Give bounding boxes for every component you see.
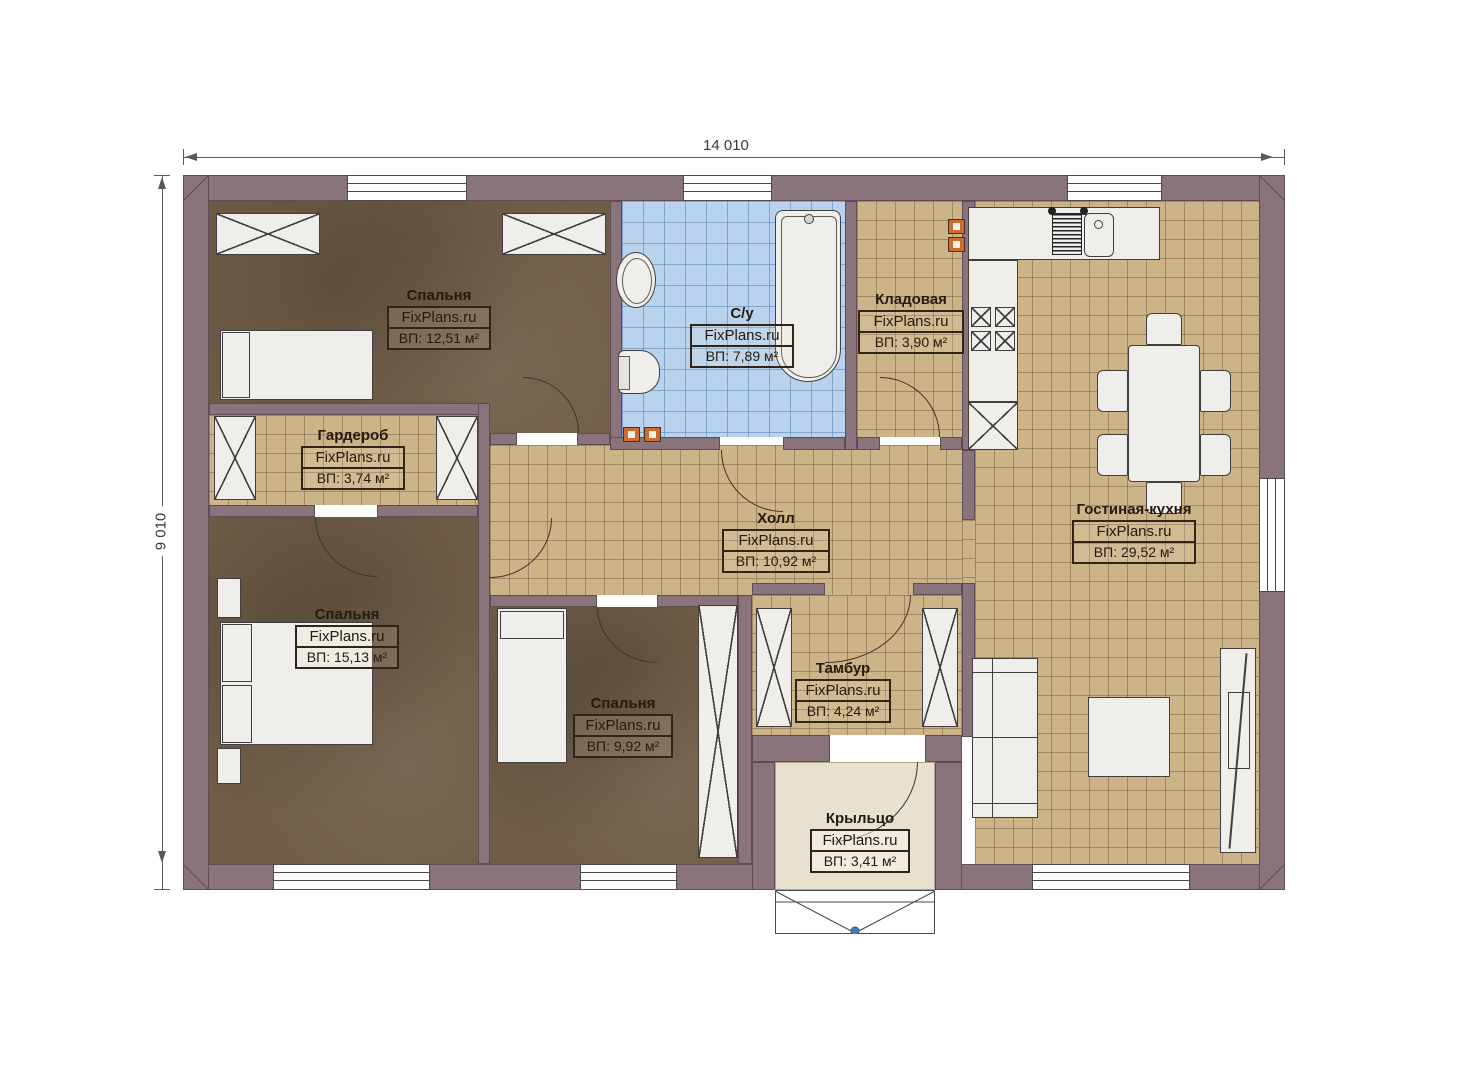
label-box: FixPlans.ru ВП: 12,51 м² <box>387 306 491 350</box>
room-label-pantry: Кладовая FixPlans.ru ВП: 3,90 м² <box>858 291 964 354</box>
dim-top-tick-right <box>1284 149 1285 165</box>
wall-entrance-a <box>752 735 830 762</box>
label-box: FixPlans.ru ВП: 4,24 м² <box>795 679 891 723</box>
watermark: FixPlans.ru <box>297 627 397 648</box>
room-area: ВП: 3,90 м² <box>860 333 962 352</box>
wall-wardrobe-bed2-a <box>209 505 315 517</box>
corner-mitre-tl <box>183 175 209 201</box>
dim-left-tick-top <box>154 175 170 176</box>
label-box: FixPlans.ru ВП: 3,41 м² <box>810 829 910 873</box>
watermark: FixPlans.ru <box>303 448 403 469</box>
stove-burner-3 <box>971 331 991 351</box>
watermark: FixPlans.ru <box>812 831 908 852</box>
corner-mitre-bl <box>183 864 209 890</box>
window-bathroom <box>683 175 772 201</box>
wall-hall-living-a <box>962 450 975 520</box>
dimension-height-label: 9 010 <box>152 507 169 557</box>
room-label-bedroom-1: Спальня FixPlans.ru ВП: 12,51 м² <box>387 287 491 350</box>
room-area: ВП: 12,51 м² <box>389 329 489 348</box>
label-box: FixPlans.ru ВП: 29,52 м² <box>1072 520 1196 564</box>
watermark: FixPlans.ru <box>860 312 962 333</box>
watermark: FixPlans.ru <box>692 326 792 347</box>
wall-entrance-b <box>925 735 962 762</box>
label-box: FixPlans.ru ВП: 9,92 м² <box>573 714 673 758</box>
wall-bed3-vestibule <box>738 595 752 864</box>
room-area: ВП: 10,92 м² <box>724 552 828 571</box>
dim-left-arrow-bottom <box>158 851 166 863</box>
room-area: ВП: 29,52 м² <box>1074 543 1194 562</box>
dimension-line-top <box>183 157 1285 158</box>
room-name: Спальня <box>387 287 491 304</box>
room-name: Кладовая <box>858 291 964 308</box>
dining-chair-right-2 <box>1200 434 1231 476</box>
toilet-tank <box>618 356 630 390</box>
room-label-bedroom-3: Спальня FixPlans.ru ВП: 9,92 м² <box>573 695 673 758</box>
bed-single-1-pillow <box>222 332 250 398</box>
wall-bath-hall-b <box>783 437 845 450</box>
sofa-back-line <box>992 659 993 817</box>
window-living-room <box>1032 864 1190 890</box>
sofa-cushion-line <box>973 737 1037 738</box>
closet-bed1-left <box>216 213 320 255</box>
wall-porch-right <box>935 762 962 890</box>
closet-vestibule-left <box>756 608 792 727</box>
stove-burner-2 <box>995 307 1015 327</box>
room-area: ВП: 9,92 м² <box>575 737 671 756</box>
room-label-bathroom: С/у FixPlans.ru ВП: 7,89 м² <box>690 305 794 368</box>
sofa <box>972 658 1038 818</box>
label-box: FixPlans.ru ВП: 3,74 м² <box>301 446 405 490</box>
closet-wardrobe-left <box>214 416 256 500</box>
washbasin-inner <box>622 258 652 304</box>
room-label-hall: Холл FixPlans.ru ВП: 10,92 м² <box>722 510 830 573</box>
watermark: FixPlans.ru <box>724 531 828 552</box>
wall-hall-vestibule-b <box>913 583 962 595</box>
room-name: Гардероб <box>301 427 405 444</box>
floor-plan: 14 010 9 010 Спальня FixPlans.ru ВП: 12,… <box>0 0 1473 1080</box>
window-kitchen <box>1067 175 1162 201</box>
window-bedroom-2 <box>273 864 430 890</box>
label-box: FixPlans.ru ВП: 15,13 м² <box>295 625 399 669</box>
watermark: FixPlans.ru <box>389 308 489 329</box>
coffee-table <box>1088 697 1170 777</box>
room-area: ВП: 3,41 м² <box>812 852 908 871</box>
room-label-bedroom-2: Спальня FixPlans.ru ВП: 15,13 м² <box>295 606 399 669</box>
dim-top-arrow-left <box>185 153 197 161</box>
outer-wall-left <box>183 175 209 890</box>
room-area: ВП: 3,74 м² <box>303 469 403 488</box>
wall-bed1-bath <box>610 201 622 445</box>
wall-porch-left <box>752 762 775 890</box>
kitchen-marker-2 <box>948 237 965 252</box>
wall-bed1-hall-b <box>577 433 610 445</box>
sink-faucet <box>1048 207 1056 215</box>
dining-chair-top <box>1146 313 1182 345</box>
room-label-vestibule: Тамбур FixPlans.ru ВП: 4,24 м² <box>795 660 891 723</box>
room-label-living-kitchen: Гостиная-кухня FixPlans.ru ВП: 29,52 м² <box>1072 501 1196 564</box>
label-box: FixPlans.ru ВП: 7,89 м² <box>690 324 794 368</box>
corner-mitre-tr <box>1259 175 1285 201</box>
room-label-wardrobe: Гардероб FixPlans.ru ВП: 3,74 м² <box>301 427 405 490</box>
kitchen-marker-1 <box>948 219 965 234</box>
room-name: Спальня <box>573 695 673 712</box>
dining-table <box>1128 345 1200 482</box>
watermark: FixPlans.ru <box>1074 522 1194 543</box>
porch-steps <box>775 890 935 934</box>
dim-top-arrow-right <box>1261 153 1273 161</box>
watermark: FixPlans.ru <box>797 681 889 702</box>
dining-chair-left-1 <box>1097 370 1128 412</box>
watermark: FixPlans.ru <box>575 716 671 737</box>
label-box: FixPlans.ru ВП: 3,90 м² <box>858 310 964 354</box>
closet-bed3 <box>698 605 738 858</box>
bathtub-faucet <box>804 214 814 224</box>
wall-hall-vestibule-a <box>752 583 825 595</box>
room-area: ВП: 7,89 м² <box>692 347 792 366</box>
room-label-porch: Крыльцо FixPlans.ru ВП: 3,41 м² <box>810 810 910 873</box>
sofa-armrest-bottom <box>973 803 1037 804</box>
stove-burner-1 <box>971 307 991 327</box>
closet-vestibule-right <box>922 608 958 727</box>
nightstand-1 <box>217 578 241 618</box>
wall-hall-bed3-a <box>490 595 597 607</box>
wall-bed1-wardrobe <box>209 403 490 415</box>
room-name: Тамбур <box>795 660 891 677</box>
room-name: Крыльцо <box>810 810 910 827</box>
dim-top-tick-left <box>183 149 184 165</box>
hall-living-threshold <box>962 520 975 583</box>
bathroom-marker-2 <box>644 427 661 442</box>
corner-mitre-br <box>1259 864 1285 890</box>
room-area: ВП: 4,24 м² <box>797 702 889 721</box>
sofa-armrest-top <box>973 672 1037 673</box>
wall-bath-pantry <box>845 201 857 450</box>
room-name: С/у <box>690 305 794 322</box>
wall-pantry-hall-a <box>857 437 880 450</box>
label-box: FixPlans.ru ВП: 10,92 м² <box>722 529 830 573</box>
window-bedroom-3 <box>580 864 677 890</box>
sink-drainer <box>1052 213 1082 255</box>
bed-double-pillow-2 <box>222 685 252 743</box>
nightstand-2 <box>217 748 241 784</box>
closet-wardrobe-right <box>436 416 478 500</box>
bathroom-marker-1 <box>623 427 640 442</box>
wall-pantry-hall-b <box>940 437 962 450</box>
sink-faucet-2 <box>1080 207 1088 215</box>
bed-single-3-pillow <box>500 611 564 639</box>
window-living-side <box>1259 478 1285 592</box>
room-name: Гостиная-кухня <box>1072 501 1196 518</box>
kitchen-cabinet <box>968 402 1018 450</box>
dim-left-arrow-top <box>158 177 166 189</box>
dining-chair-right-1 <box>1200 370 1231 412</box>
wall-wardrobe-bed2-b <box>377 505 478 517</box>
sink-drain <box>1094 220 1103 229</box>
dim-left-tick-bottom <box>154 889 170 890</box>
wall-bed1-hall-a <box>490 433 517 445</box>
bed-double-pillow-1 <box>222 624 252 682</box>
window-bedroom-1 <box>347 175 467 201</box>
stove-burner-4 <box>995 331 1015 351</box>
dining-chair-left-2 <box>1097 434 1128 476</box>
wall-bed2-right <box>478 403 490 864</box>
room-name: Холл <box>722 510 830 527</box>
room-area: ВП: 15,13 м² <box>297 648 397 667</box>
closet-bed1-right <box>502 213 606 255</box>
dimension-width-label: 14 010 <box>697 137 755 154</box>
room-name: Спальня <box>295 606 399 623</box>
